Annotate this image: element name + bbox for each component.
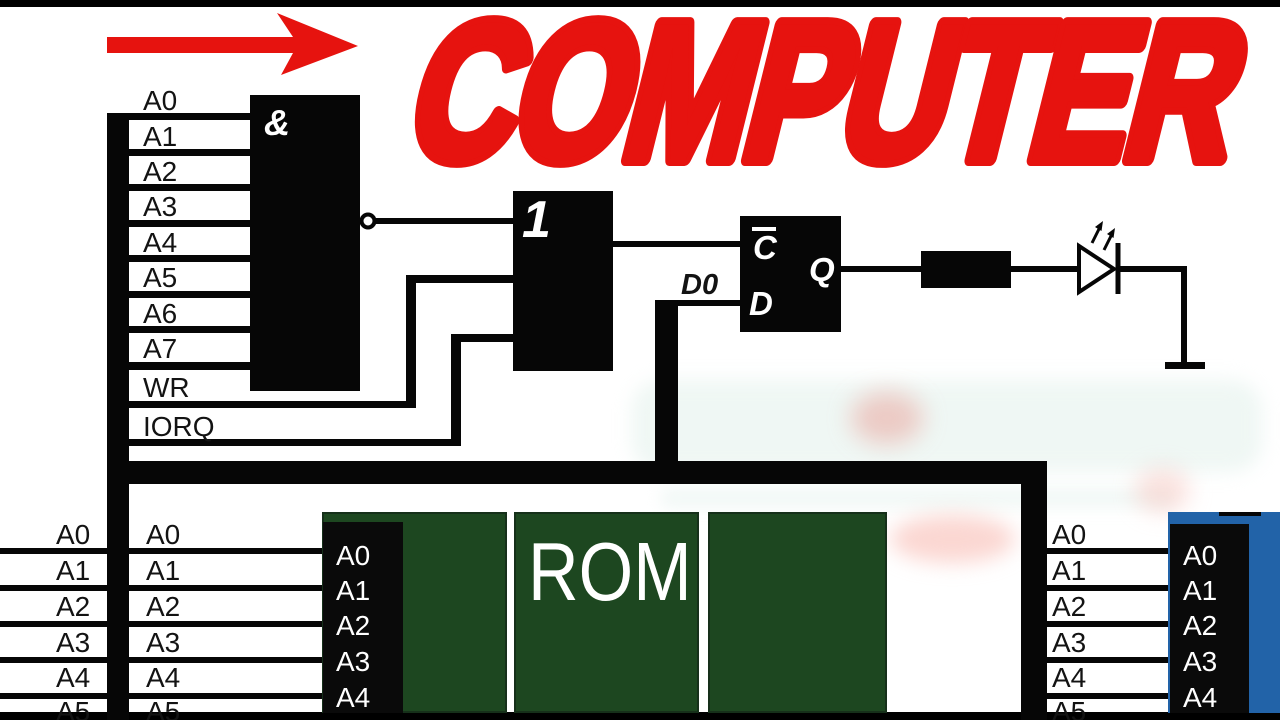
svg-text:COMPUTER: COMPUTER [391, 0, 1267, 200]
